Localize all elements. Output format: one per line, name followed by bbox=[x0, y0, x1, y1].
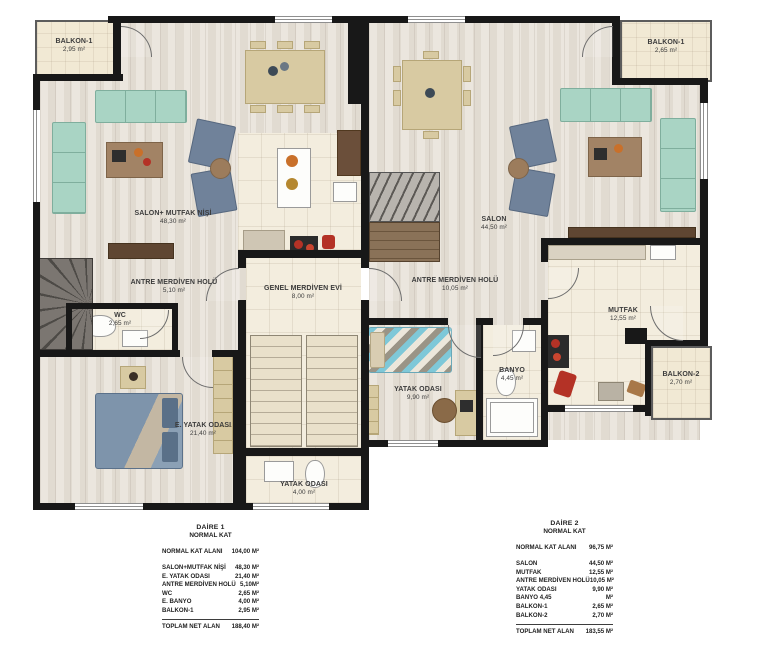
table-row: ANTRE MERDİVEN HOLÜ5,10M² bbox=[162, 581, 259, 588]
row-value: 4,00 M² bbox=[238, 598, 259, 605]
wall-pier bbox=[625, 328, 647, 344]
table-row: MUTFAK12,55 M² bbox=[516, 569, 613, 576]
row-label: BALKON-2 bbox=[516, 612, 547, 619]
decor-red bbox=[143, 158, 151, 166]
row-label: BANYO 4,45 bbox=[516, 594, 552, 601]
table-decor bbox=[425, 88, 435, 98]
wall bbox=[361, 258, 369, 268]
lamp bbox=[129, 372, 138, 381]
window bbox=[388, 440, 438, 447]
room-name: ANTRE MERDİVEN HOLÜ bbox=[412, 277, 499, 284]
window bbox=[565, 405, 633, 412]
room-name: BANYO bbox=[499, 367, 525, 374]
row-value: 2,95 M² bbox=[238, 607, 259, 614]
pot-red bbox=[551, 339, 560, 348]
window bbox=[253, 503, 329, 510]
table-total-row: TOPLAM NET ALAN183,55 M² bbox=[516, 624, 613, 635]
wall bbox=[233, 350, 240, 510]
wall bbox=[33, 74, 123, 81]
dining-chair bbox=[304, 41, 320, 49]
area-table-daire-1: DAİRE 1 NORMAL KAT NORMAL KAT ALANI104,0… bbox=[162, 524, 259, 632]
room-name: E. YATAK ODASI bbox=[175, 422, 231, 429]
row-label: WC bbox=[162, 590, 172, 597]
row-label: YATAK ODASI bbox=[516, 586, 557, 593]
row-label: BALKON-1 bbox=[162, 607, 193, 614]
kitchen-sink bbox=[598, 382, 624, 401]
row-label: NORMAL KAT ALANI bbox=[162, 548, 222, 555]
wall bbox=[238, 250, 246, 268]
stairs bbox=[369, 172, 440, 222]
pillow bbox=[370, 332, 385, 368]
fruit-bowl bbox=[134, 148, 143, 157]
table-row: SALON44,50 M² bbox=[516, 560, 613, 567]
dining-chair bbox=[277, 105, 293, 113]
row-label: TOPLAM NET ALAN bbox=[516, 628, 574, 635]
fridge bbox=[650, 245, 676, 260]
window bbox=[408, 16, 465, 23]
row-label: E. YATAK ODASI bbox=[162, 573, 210, 580]
room-area: 8,00 m² bbox=[264, 293, 342, 302]
row-label: BALKON-1 bbox=[516, 603, 547, 610]
table-rows: SALON+MUTFAK NİŞİ48,30 M² E. YATAK ODASI… bbox=[162, 564, 259, 614]
room-name: YATAK ODASI bbox=[280, 481, 328, 488]
row-label: E. BANYO bbox=[162, 598, 191, 605]
dining-chair bbox=[393, 66, 401, 82]
room-area: 2,65 m² bbox=[648, 47, 685, 56]
table-total-row: TOPLAM NET ALAN188,40 M² bbox=[162, 619, 259, 630]
row-label: MUTFAK bbox=[516, 569, 541, 576]
pot-red bbox=[553, 353, 561, 361]
room-label-genel-merdiven: GENEL MERDİVEN EVİ8,00 m² bbox=[264, 284, 342, 302]
dining-chair bbox=[277, 41, 293, 49]
table-row: BALKON-12,95 M² bbox=[162, 607, 259, 614]
room-label-mutfak: MUTFAK12,55 m² bbox=[608, 306, 638, 324]
room-name: BALKON-2 bbox=[663, 371, 700, 378]
room-area: 4,00 m² bbox=[280, 489, 328, 498]
wall bbox=[645, 340, 708, 346]
wall bbox=[238, 250, 369, 258]
table-row: NORMAL KAT ALANI96,75 M² bbox=[516, 544, 613, 551]
stand-mixer bbox=[322, 235, 335, 249]
room-label-balkon-2: BALKON-22,70 m² bbox=[663, 370, 700, 388]
room-label-antre-2: ANTRE MERDİVEN HOLÜ10,05 m² bbox=[412, 276, 499, 294]
row-value: 9,90 M² bbox=[592, 586, 613, 593]
wall bbox=[113, 16, 121, 81]
table-row: WC2,65 M² bbox=[162, 590, 259, 597]
room-label-antre-1: ANTRE MERDİVEN HOLÜ5,10 m² bbox=[131, 278, 218, 296]
row-value: 48,30 M² bbox=[235, 564, 259, 571]
room-label-banyo: BANYO4,45 m² bbox=[499, 366, 525, 384]
row-value: 188,40 M² bbox=[232, 623, 259, 630]
row-label: ANTRE MERDİVEN HOLÜ bbox=[162, 581, 236, 588]
table-title: DAİRE 2 bbox=[516, 520, 613, 527]
room-name: YATAK ODASI bbox=[394, 386, 442, 393]
room-name: SALON+ MUTFAK NİŞİ bbox=[134, 210, 211, 217]
room-area: 4,45 m² bbox=[499, 375, 525, 384]
room-area: 48,30 m² bbox=[134, 218, 211, 227]
stairs bbox=[369, 222, 440, 262]
wall bbox=[33, 350, 180, 357]
table-row: NORMAL KAT ALANI104,00 M² bbox=[162, 548, 259, 555]
floor-plan-page: { "plan": { "rooms": [ {"name": "BALKON-… bbox=[0, 0, 760, 645]
table-row: BALKON-12,65 M² bbox=[516, 603, 613, 610]
room-name: BALKON-1 bbox=[56, 38, 93, 45]
fruit-bowl bbox=[614, 144, 623, 153]
wall bbox=[66, 303, 72, 356]
room-area: 10,05 m² bbox=[412, 285, 499, 294]
wall bbox=[361, 318, 448, 325]
dining-table bbox=[245, 50, 325, 104]
room-label-yatak-4: YATAK ODASI4,00 m² bbox=[280, 480, 328, 498]
tray bbox=[594, 148, 607, 160]
row-value: 2,70 M² bbox=[592, 612, 613, 619]
row-value: 2,65 M² bbox=[592, 603, 613, 610]
room-label-balkon1-left: BALKON-12,95 m² bbox=[56, 37, 93, 55]
sofa bbox=[660, 118, 696, 212]
tv-unit bbox=[568, 227, 696, 238]
dining-chair bbox=[423, 51, 439, 59]
area-table-daire-2: DAİRE 2 NORMAL KAT NORMAL KAT ALANI96,75… bbox=[516, 520, 613, 636]
sofa bbox=[95, 90, 187, 123]
fruit-bowl bbox=[286, 155, 298, 167]
room-label-salon-mutfak: SALON+ MUTFAK NİŞİ48,30 m² bbox=[134, 209, 211, 227]
room-area: 2,65 m² bbox=[109, 320, 131, 329]
table-decor bbox=[280, 62, 289, 71]
room-label-wc: WC2,65 m² bbox=[109, 311, 131, 329]
stairs bbox=[306, 335, 358, 447]
kitchen-counter bbox=[548, 245, 646, 260]
room-name: MUTFAK bbox=[608, 307, 638, 314]
row-label: ANTRE MERDİVEN HOLÜ bbox=[516, 577, 590, 584]
room-area: 44,50 m² bbox=[481, 224, 507, 233]
table-row: E. BANYO4,00 M² bbox=[162, 598, 259, 605]
table-title: DAİRE 1 bbox=[162, 524, 259, 531]
wall-cabinet bbox=[333, 182, 357, 202]
room-area: 21,40 m² bbox=[175, 430, 231, 439]
row-value: 12,55 M² bbox=[589, 569, 613, 576]
wardrobe bbox=[213, 356, 233, 454]
room-area: 2,95 m² bbox=[56, 46, 93, 55]
row-label: SALON+MUTFAK NİŞİ bbox=[162, 564, 226, 571]
table-row: BANYO 4,45M² bbox=[516, 594, 613, 601]
room-name: ANTRE MERDİVEN HOLÜ bbox=[131, 279, 218, 286]
row-value: M² bbox=[606, 594, 613, 601]
table-subtitle: NORMAL KAT bbox=[516, 528, 613, 535]
table-row: SALON+MUTFAK NİŞİ48,30 M² bbox=[162, 564, 259, 571]
wall bbox=[172, 303, 178, 356]
wall bbox=[541, 238, 548, 262]
row-label: TOPLAM NET ALAN bbox=[162, 623, 220, 630]
table-row: BALKON-22,70 M² bbox=[516, 612, 613, 619]
room-label-yatak-99: YATAK ODASI9,90 m² bbox=[394, 385, 442, 403]
window bbox=[33, 110, 40, 202]
row-value: 10,05 M² bbox=[590, 577, 614, 584]
row-value: 104,00 M² bbox=[232, 548, 259, 555]
row-value: 44,50 M² bbox=[589, 560, 613, 567]
sideboard bbox=[108, 243, 174, 259]
table-decor bbox=[268, 66, 278, 76]
table-subtitle: NORMAL KAT bbox=[162, 532, 259, 539]
row-value: 5,10M² bbox=[240, 581, 259, 588]
room-name: WC bbox=[114, 312, 126, 319]
row-label: SALON bbox=[516, 560, 537, 567]
table-row: YATAK ODASI9,90 M² bbox=[516, 586, 613, 593]
dining-chair bbox=[393, 90, 401, 106]
row-value: 183,55 M² bbox=[586, 628, 613, 635]
side-table bbox=[508, 158, 529, 179]
sofa bbox=[560, 88, 652, 122]
wall bbox=[541, 238, 708, 245]
dining-chair bbox=[423, 131, 439, 139]
wall bbox=[645, 340, 651, 416]
bathtub bbox=[486, 398, 538, 437]
table-row: E. YATAK ODASI21,40 M² bbox=[162, 573, 259, 580]
room-area: 9,90 m² bbox=[394, 394, 442, 403]
wall bbox=[238, 448, 369, 456]
row-label: NORMAL KAT ALANI bbox=[516, 544, 576, 551]
room-label-balkon1-right: BALKON-12,65 m² bbox=[648, 38, 685, 56]
dining-chair bbox=[463, 66, 471, 82]
table-rows: SALON44,50 M² MUTFAK12,55 M² ANTRE MERDİ… bbox=[516, 560, 613, 619]
row-value: 2,65 M² bbox=[238, 590, 259, 597]
sofa bbox=[52, 122, 86, 214]
window bbox=[275, 16, 332, 23]
room-area: 12,55 m² bbox=[608, 315, 638, 324]
side-table bbox=[210, 158, 231, 179]
tray bbox=[112, 150, 126, 162]
stairs bbox=[250, 335, 302, 447]
dining-chair bbox=[463, 90, 471, 106]
room-name: BALKON-1 bbox=[648, 39, 685, 46]
room-area: 2,70 m² bbox=[663, 379, 700, 388]
pot-red bbox=[294, 240, 303, 249]
wall bbox=[612, 16, 620, 85]
wall bbox=[612, 78, 708, 85]
row-value: 21,40 M² bbox=[235, 573, 259, 580]
room-area: 5,10 m² bbox=[131, 287, 218, 296]
laptop bbox=[460, 400, 473, 412]
room-name: GENEL MERDİVEN EVİ bbox=[264, 285, 342, 292]
wall bbox=[541, 300, 548, 447]
wall bbox=[361, 300, 369, 510]
wall bbox=[66, 303, 178, 309]
fruit-bowl bbox=[286, 178, 298, 190]
wall-pier bbox=[348, 16, 368, 104]
dining-chair bbox=[250, 41, 266, 49]
room-label-salon-2: SALON44,50 m² bbox=[481, 215, 507, 233]
dining-chair bbox=[304, 105, 320, 113]
table-row: ANTRE MERDİVEN HOLÜ10,05 M² bbox=[516, 577, 613, 584]
room-label-e-yatak: E. YATAK ODASI21,40 m² bbox=[175, 421, 231, 439]
window bbox=[700, 103, 708, 179]
row-value: 96,75 M² bbox=[589, 544, 613, 551]
dining-chair bbox=[250, 105, 266, 113]
tall-cabinet bbox=[337, 130, 361, 176]
sink bbox=[264, 461, 294, 482]
room-name: SALON bbox=[482, 216, 507, 223]
window bbox=[75, 503, 143, 510]
